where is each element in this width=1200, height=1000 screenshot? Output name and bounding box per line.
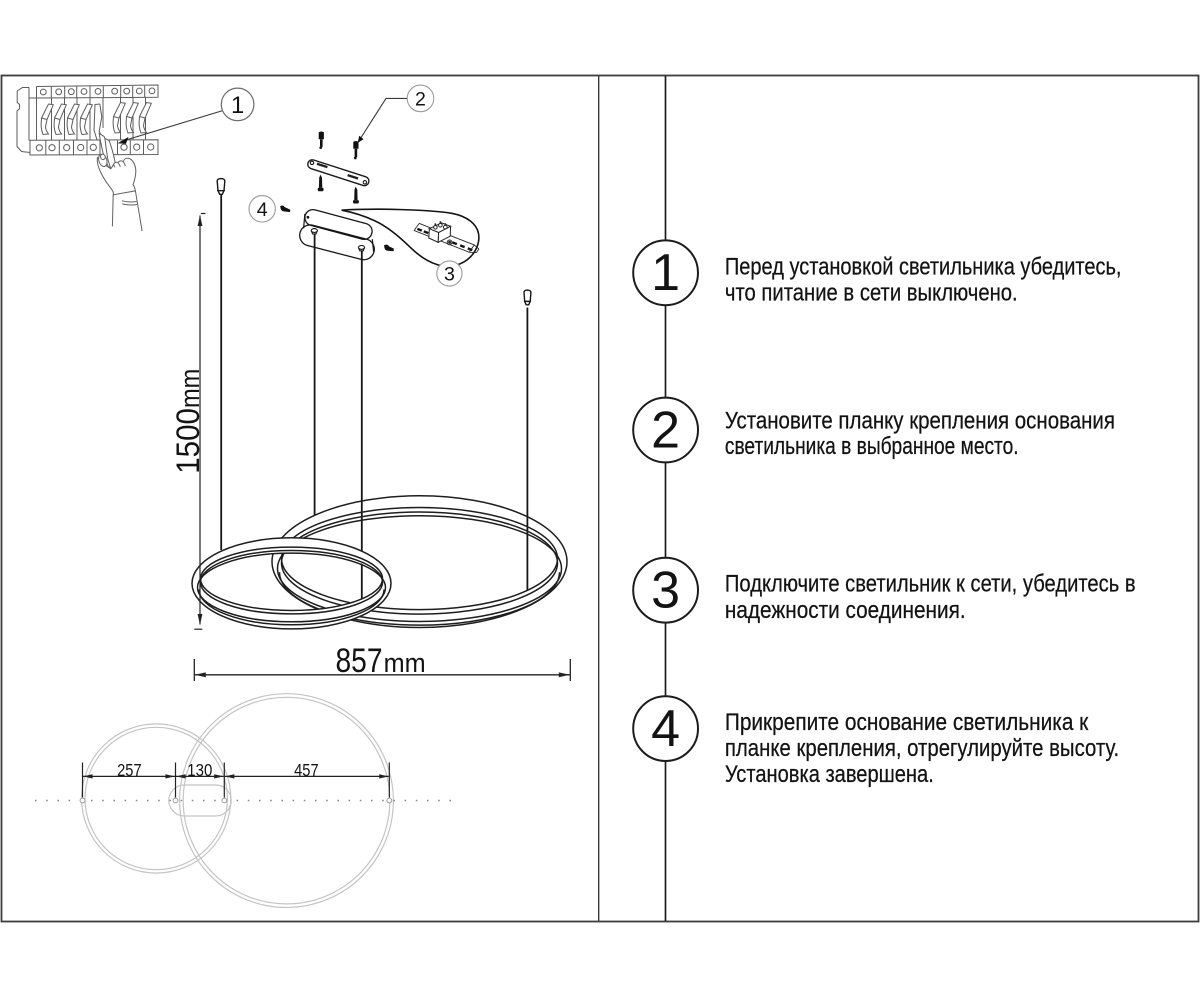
svg-text:1: 1 (231, 92, 244, 119)
svg-text:1: 1 (651, 244, 680, 302)
svg-text:4: 4 (651, 700, 680, 758)
svg-text:1500mm: 1500mm (170, 369, 206, 474)
svg-text:что питание в сети выключено.: что питание в сети выключено. (725, 280, 1018, 307)
svg-text:4: 4 (257, 199, 268, 221)
svg-text:857: 857 (336, 642, 383, 680)
svg-text:надежности соединения.: надежности соединения. (725, 597, 966, 624)
svg-text:светильника в выбранное место.: светильника в выбранное место. (725, 433, 1019, 460)
svg-text:2: 2 (415, 88, 426, 110)
svg-text:3: 3 (651, 562, 680, 620)
svg-text:257: 257 (117, 760, 142, 780)
svg-text:Подключите светильник к сети,: Подключите светильник к сети, убедитесь … (725, 571, 1136, 598)
svg-text:Прикрепите основание светильни: Прикрепите основание светильника к (725, 709, 1089, 736)
svg-text:Установите планку крепления ос: Установите планку крепления основания (725, 408, 1115, 435)
svg-text:планке крепления, отрегулируйт: планке крепления, отрегулируйте высоту. (725, 735, 1119, 762)
svg-text:mm: mm (384, 648, 426, 678)
svg-text:Установка завершена.: Установка завершена. (725, 761, 934, 788)
svg-text:2: 2 (651, 401, 680, 459)
svg-text:457: 457 (294, 760, 319, 780)
svg-text:3: 3 (444, 263, 455, 285)
svg-text:130: 130 (187, 760, 212, 780)
svg-text:Перед установкой светильника у: Перед установкой светильника убедитесь, (725, 253, 1122, 280)
